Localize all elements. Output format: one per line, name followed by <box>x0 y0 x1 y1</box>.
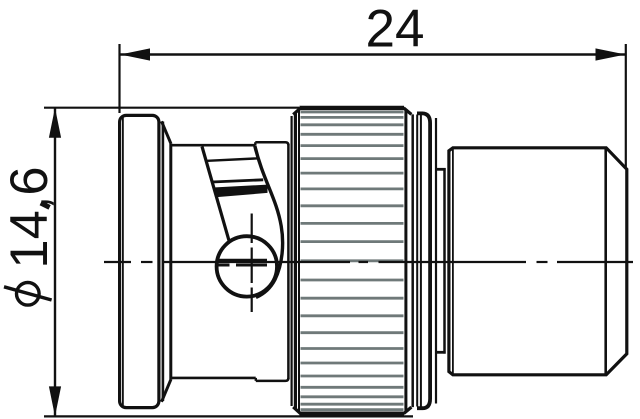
svg-text:24: 24 <box>366 0 425 58</box>
svg-text:14,6: 14,6 <box>0 166 59 268</box>
